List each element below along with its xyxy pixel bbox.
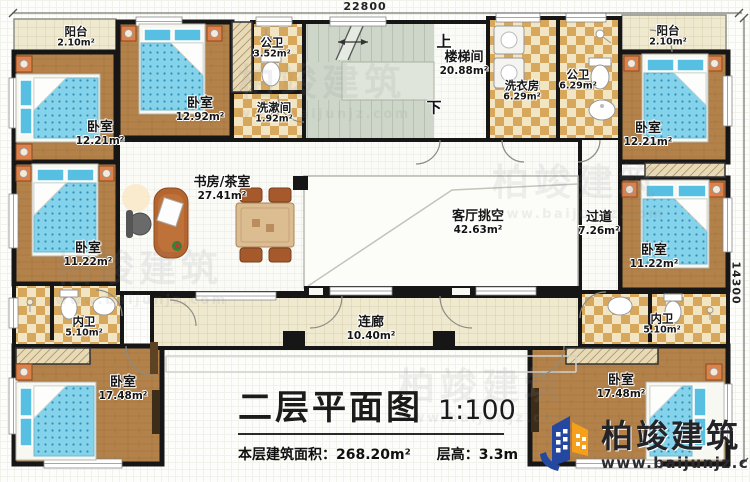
- room-label-hallway: 过道7.26m²: [578, 211, 619, 237]
- room-label-bath-inner-left: 内卫5.10m²: [65, 315, 103, 339]
- brand-logo-text: 柏竣建筑 www.baijunjz.com: [601, 411, 750, 472]
- room-label-balcony-left: 阳台2.10m²: [57, 25, 95, 49]
- brand-name: 柏竣建筑: [601, 411, 750, 457]
- plan-scale: 1:100: [438, 395, 516, 426]
- door-leaf: [150, 342, 158, 374]
- floor-area-value: 268.20m²: [336, 447, 411, 463]
- room-label-bedroom-mid-left: 卧室11.22m²: [64, 242, 113, 268]
- title-row: 二层平面图 1:100: [238, 380, 504, 429]
- floor-height-value: 3.3m: [479, 447, 518, 463]
- room-label-bedroom-bottom-right: 卧室17.48m²: [597, 374, 646, 400]
- floor-plan-canvas: 柏竣建筑www.baijunjz.com 柏竣建筑www.baijunjz.co…: [0, 0, 750, 482]
- room-label-corridor: 连廊10.40m²: [347, 316, 396, 342]
- door-leaf: [152, 390, 160, 434]
- brand-site: www.baijunjz.com: [601, 454, 750, 472]
- stair-down-label: 下: [426, 97, 441, 118]
- chair: [269, 248, 291, 262]
- room-label-living-void: 客厅挑空42.63m²: [452, 210, 504, 236]
- sink-icon: [93, 297, 115, 315]
- stairs: [306, 24, 434, 138]
- room-label-bedroom-mid-right: 卧室11.22m²: [630, 244, 679, 270]
- floor-area-label: 本层建筑面积：: [238, 447, 336, 463]
- corridor-railing: [166, 356, 576, 372]
- room-label-laundry: 洗衣房6.29m²: [503, 79, 541, 103]
- dining-table: [236, 203, 294, 247]
- dimension-right: 14300: [730, 261, 743, 304]
- sink-icon: [608, 297, 632, 315]
- living-void: [304, 176, 580, 296]
- chair: [240, 248, 262, 262]
- toilet-icon: [60, 290, 78, 297]
- room-label-bedroom-top-right: 卧室12.21m²: [624, 122, 673, 148]
- room-label-study: 书房/茶室27.41m²: [194, 176, 251, 202]
- floor-height-label: 层高：: [437, 447, 479, 463]
- toilet-icon: [664, 294, 682, 301]
- room-label-bedroom-top-left: 卧室12.21m²: [76, 121, 125, 147]
- title-underline: [238, 433, 504, 435]
- room-label-balcony-right: 阳台2.10m²: [649, 24, 687, 48]
- chair: [269, 188, 291, 202]
- room-label-bath-top: 公卫3.52m²: [253, 36, 291, 60]
- plan-info: 本层建筑面积：268.20m²层高：3.3m: [238, 444, 504, 464]
- sink-icon: [589, 100, 615, 120]
- brand-logo: 柏竣建筑 www.baijunjz.com: [536, 410, 750, 472]
- room-label-bath-right-top: 公卫6.29m²: [559, 68, 597, 92]
- room-label-stair-hall: 楼梯间20.88m²: [440, 51, 489, 77]
- stair-up-label: 上: [436, 31, 451, 52]
- room-label-washroom: 洗漱间1.92m²: [255, 101, 293, 125]
- brand-logo-icon: [536, 410, 594, 472]
- plan-title: 二层平面图: [238, 380, 423, 429]
- title-block: 二层平面图 1:100 本层建筑面积：268.20m²层高：3.3m: [238, 380, 504, 464]
- room-label-bedroom-top-2: 卧室12.92m²: [176, 97, 225, 123]
- dimension-top: 22800: [343, 0, 386, 13]
- room-label-bedroom-bottom-left: 卧室17.48m²: [99, 376, 148, 402]
- room-label-bath-inner-right: 内卫5.10m²: [643, 312, 681, 336]
